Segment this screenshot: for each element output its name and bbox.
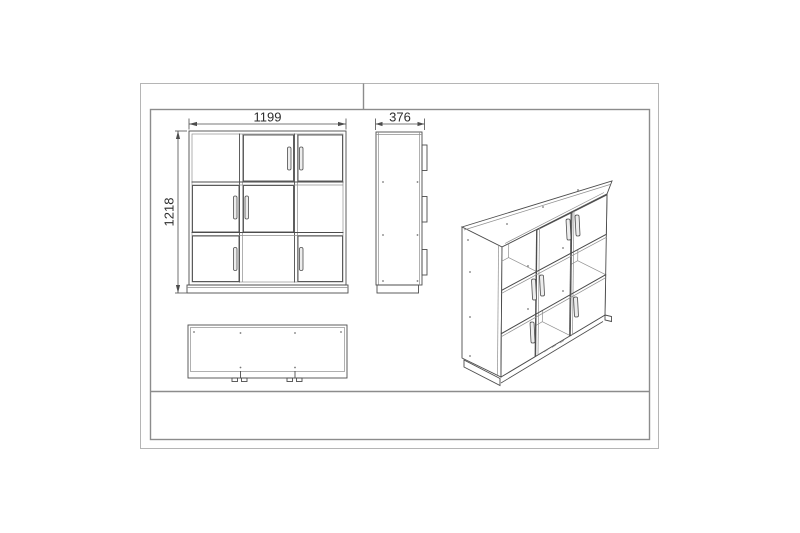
iso-left-face <box>462 227 502 377</box>
side-hardware-marks <box>382 181 418 282</box>
plan-hardware-marks <box>193 331 342 368</box>
door-handle <box>575 215 580 236</box>
front-base <box>187 285 348 293</box>
door-handle <box>539 275 544 296</box>
side-depth-dimension: 376 <box>376 110 425 131</box>
door-edge <box>422 145 427 171</box>
isometric-view <box>462 181 612 386</box>
door-handle <box>234 196 238 219</box>
plan-view <box>188 325 347 382</box>
plan-handle-marks <box>232 378 302 382</box>
door <box>193 186 240 233</box>
plan-outline <box>188 325 347 378</box>
dimension-arrow-icon <box>338 122 346 126</box>
front-cabinet-outline <box>187 131 348 293</box>
door-handle <box>530 322 535 343</box>
front-grid-lines <box>192 134 343 282</box>
door-handle <box>297 378 303 382</box>
side-base <box>377 285 419 293</box>
door <box>298 135 343 181</box>
side-view: 376 <box>376 110 428 294</box>
door-edge <box>422 250 427 276</box>
door-handle <box>300 248 304 271</box>
door-handle <box>566 219 571 240</box>
front-height-label: 1218 <box>162 198 177 227</box>
door-handle <box>234 248 238 271</box>
drawing-canvas: 1199 1218 <box>0 0 800 533</box>
front-width-dimension: 1199 <box>189 110 346 130</box>
dimension-arrow-icon <box>189 122 197 126</box>
front-width-label: 1199 <box>254 110 282 125</box>
door <box>298 236 343 282</box>
dimension-arrow-icon <box>176 285 180 293</box>
door-handle <box>242 378 248 382</box>
door-handle <box>245 196 249 219</box>
door-handle <box>573 297 578 317</box>
door-handle <box>288 147 292 170</box>
door-handle <box>300 147 304 170</box>
door <box>244 186 294 233</box>
dimension-arrow-icon <box>176 131 180 139</box>
door-edge <box>422 197 427 223</box>
technical-drawing-page: 1199 1218 <box>0 0 800 533</box>
side-cabinet-outline <box>376 132 422 293</box>
door-handle <box>232 378 238 382</box>
side-door-edges <box>422 145 427 275</box>
door <box>193 236 240 282</box>
door <box>244 135 294 181</box>
front-height-dimension: 1218 <box>162 131 188 293</box>
dimension-arrow-icon <box>376 122 383 126</box>
side-depth-label: 376 <box>389 110 411 125</box>
front-view: 1199 1218 <box>162 110 349 294</box>
door-handle <box>287 378 293 382</box>
dimension-arrow-icon <box>418 122 425 126</box>
front-doors <box>193 135 343 282</box>
door-handle <box>531 279 536 300</box>
